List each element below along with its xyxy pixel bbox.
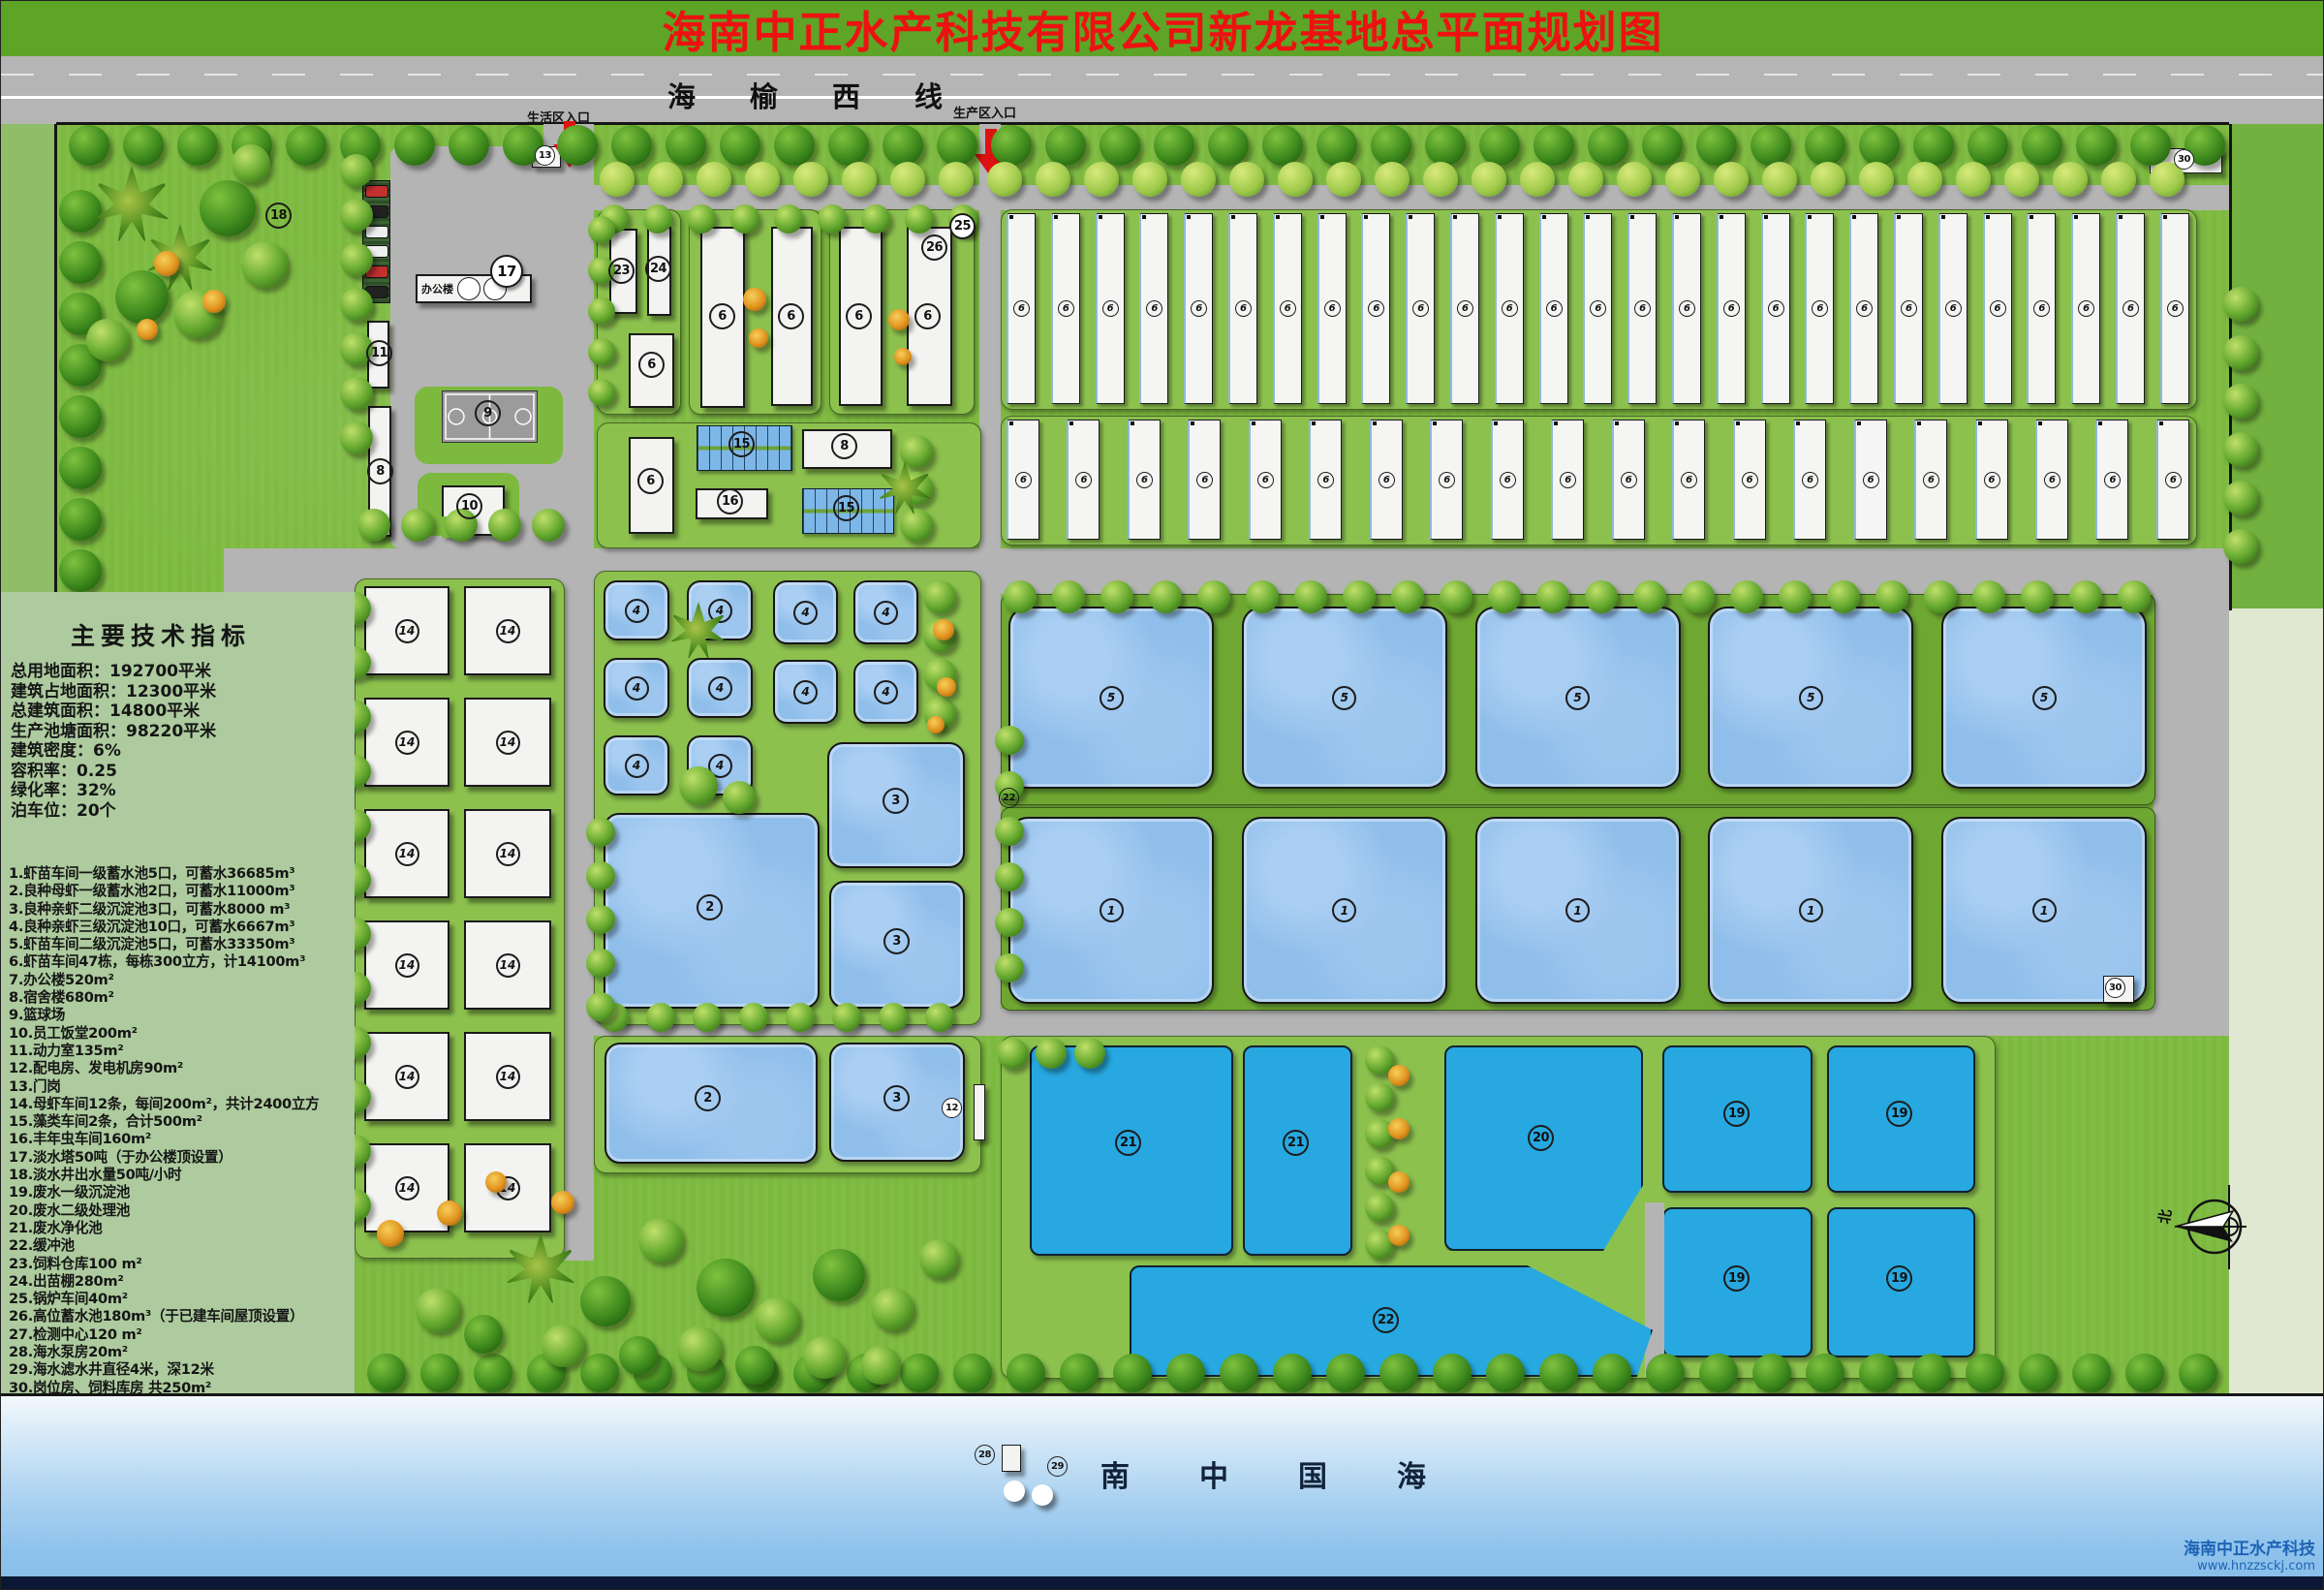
- marker-8: 8: [831, 433, 857, 459]
- marker-3: 3: [883, 928, 910, 954]
- marker-12: 12: [942, 1098, 962, 1118]
- bottom-bar: [1, 1576, 2324, 1590]
- watermark: 海南中正水产科技 www.hnzzsckj.com: [2184, 1535, 2315, 1574]
- indicator-line: 建筑密度：6%: [11, 741, 216, 762]
- sea-name: 南中国海: [1100, 1452, 1496, 1495]
- legend-item: 5虾苗车间二级沉淀池5口，可蓄水33350m³: [9, 936, 319, 953]
- marker-3: 3: [883, 788, 909, 814]
- marker-22: 22: [999, 788, 1019, 808]
- legend-item: 15藻类车间2条，合计500m²: [9, 1113, 319, 1131]
- legend-item: 9篮球场: [9, 1007, 319, 1024]
- marker-30: 30: [2174, 149, 2194, 170]
- legend-item: 23饲料仓库100 m²: [9, 1256, 319, 1273]
- legend-item: 20废水二级处理池: [9, 1202, 319, 1220]
- info-panel: 主要技术指标 总用地面积：192700平米建筑占地面积：12300平米总建筑面积…: [1, 592, 355, 1396]
- marker-17: 17: [490, 255, 523, 288]
- legend-item: 10员工饭堂200m²: [9, 1025, 319, 1043]
- legend-item: 3良种亲虾二级沉淀池3口，可蓄水8000 m³: [9, 901, 319, 919]
- marker-2: 2: [697, 894, 723, 920]
- marker-9: 9: [475, 400, 501, 426]
- marker-16: 16: [717, 488, 743, 514]
- marker-26: 26: [921, 234, 947, 261]
- legend-item: 21废水净化池: [9, 1220, 319, 1237]
- marker-29: 29: [1047, 1456, 1068, 1477]
- technical-indicators: 总用地面积：192700平米建筑占地面积：12300平米总建筑面积：14800平…: [11, 662, 216, 821]
- marker-6: 6: [637, 468, 664, 494]
- indicator-line: 泊车位：20个: [11, 801, 216, 822]
- marker-19: 19: [1886, 1101, 1912, 1127]
- marker-19: 19: [1723, 1265, 1750, 1292]
- legend-list: 1虾苗车间一级蓄水池5口，可蓄水36685m³2良种母虾一级蓄水池2口，可蓄水1…: [9, 865, 319, 1397]
- marker-25: 25: [949, 213, 976, 239]
- legend-item: 24出苗棚280m²: [9, 1273, 319, 1291]
- marker-11: 11: [366, 340, 392, 366]
- legend-item: 6虾苗车间47栋，每栋300立方，计14100m³: [9, 953, 319, 971]
- marker-21: 21: [1115, 1130, 1141, 1156]
- legend-item: 13门岗: [9, 1078, 319, 1096]
- coastline: [1, 1393, 2324, 1396]
- master-plan-canvas: 海南中正水产科技有限公司新龙基地总平面规划图 海榆西线: [0, 0, 2324, 1590]
- marker-22: 22: [1373, 1307, 1399, 1333]
- legend-item: 28海水泵房20m²: [9, 1344, 319, 1361]
- legend-item: 16丰年虫车间160m²: [9, 1131, 319, 1148]
- marker-30: 30: [2105, 978, 2125, 998]
- indicator-line: 总建筑面积：14800平米: [11, 701, 216, 722]
- legend-item: 22缓冲池: [9, 1237, 319, 1255]
- marker-19: 19: [1886, 1265, 1912, 1292]
- legend-item: 27检测中心120 m²: [9, 1326, 319, 1344]
- legend-item: 25锅炉车间40m²: [9, 1291, 319, 1308]
- marker-2: 2: [695, 1085, 721, 1111]
- marker-20: 20: [1528, 1125, 1554, 1151]
- marker-10: 10: [456, 493, 482, 519]
- sea-area: 南中国海 海南中正水产科技 www.hnzzsckj.com: [1, 1396, 2324, 1590]
- indicator-line: 生产池塘面积：98220平米: [11, 722, 216, 742]
- marker-24: 24: [645, 256, 671, 282]
- legend-item: 17淡水塔50吨（于办公楼顶设置）: [9, 1149, 319, 1167]
- legend-item: 8宿舍楼680m²: [9, 989, 319, 1007]
- indicator-line: 总用地面积：192700平米: [11, 662, 216, 682]
- watermark-company: 海南中正水产科技: [2184, 1535, 2315, 1559]
- marker-15: 15: [728, 431, 755, 457]
- legend-item: 26高位蓄水池180m³（于已建车间屋顶设置）: [9, 1308, 319, 1325]
- legend-item: 19废水一级沉淀池: [9, 1184, 319, 1201]
- marker-18: 18: [265, 203, 292, 229]
- indicator-line: 绿化率：32%: [11, 781, 216, 801]
- marker-19: 19: [1723, 1101, 1750, 1127]
- marker-3: 3: [883, 1085, 910, 1111]
- marker-23: 23: [608, 258, 635, 284]
- marker-6: 6: [778, 303, 804, 329]
- indicator-line: 容积率：0.25: [11, 762, 216, 782]
- legend-item: 1虾苗车间一级蓄水池5口，可蓄水36685m³: [9, 865, 319, 883]
- marker-6: 6: [638, 352, 665, 378]
- legend-item: 18淡水井出水量50吨/小时: [9, 1167, 319, 1184]
- compass: [2169, 1181, 2261, 1273]
- legend-item: 14母虾车间12条，每间200m²，共计2400立方: [9, 1096, 319, 1113]
- marker-6: 6: [914, 303, 941, 329]
- compass-icon: [2169, 1181, 2261, 1273]
- legend-item: 2良种母虾一级蓄水池2口，可蓄水11000m³: [9, 883, 319, 900]
- legend-item: 12配电房、发电机房90m²: [9, 1060, 319, 1077]
- marker-8: 8: [367, 458, 393, 484]
- legend-item: 4良种亲虾三级沉淀池10口，可蓄水6667m³: [9, 919, 319, 936]
- panel-title: 主要技术指标: [71, 617, 251, 652]
- sea-pump-house-28: [1002, 1445, 1021, 1472]
- watermark-url: www.hnzzsckj.com: [2184, 1559, 2315, 1574]
- filter-well-29-icon: [1032, 1484, 1053, 1506]
- filter-well-29-icon: [1004, 1481, 1025, 1502]
- indicator-line: 建筑占地面积：12300平米: [11, 682, 216, 702]
- marker-6: 6: [846, 303, 872, 329]
- legend-item: 11动力室135m²: [9, 1043, 319, 1060]
- marker-28: 28: [975, 1445, 995, 1465]
- marker-15: 15: [833, 495, 859, 521]
- marker-13: 13: [535, 145, 555, 166]
- legend-item: 29海水滤水井直径4米，深12米: [9, 1361, 319, 1379]
- legend-item: 7办公楼520m²: [9, 972, 319, 989]
- marker-21: 21: [1283, 1130, 1309, 1156]
- marker-6: 6: [709, 303, 735, 329]
